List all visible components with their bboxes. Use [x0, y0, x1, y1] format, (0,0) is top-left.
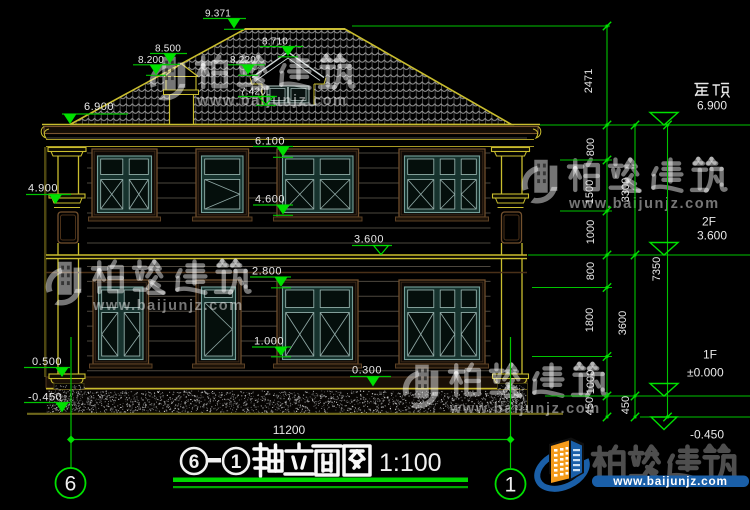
svg-text:6.900: 6.900 — [84, 101, 114, 113]
svg-text:11200: 11200 — [273, 423, 306, 437]
svg-text:1:100: 1:100 — [379, 449, 442, 477]
svg-text:1: 1 — [505, 474, 517, 497]
svg-text:2471: 2471 — [583, 69, 595, 93]
svg-text:9.371: 9.371 — [205, 9, 231, 20]
svg-text:1F: 1F — [703, 348, 717, 362]
svg-text:3600: 3600 — [617, 311, 629, 335]
svg-text:0.500: 0.500 — [32, 356, 62, 368]
svg-text:2F: 2F — [702, 215, 716, 229]
svg-text:3.600: 3.600 — [354, 234, 384, 246]
svg-text:6.100: 6.100 — [255, 136, 285, 148]
svg-text:www.baijunjz.com: www.baijunjz.com — [612, 474, 728, 488]
svg-text:1500: 1500 — [584, 180, 596, 204]
svg-text:2.800: 2.800 — [252, 266, 282, 278]
svg-text:1: 1 — [231, 452, 242, 473]
svg-text:-0.450: -0.450 — [28, 392, 62, 404]
svg-text:1000: 1000 — [585, 220, 597, 244]
svg-text:6.900: 6.900 — [697, 99, 727, 113]
svg-text:1.000: 1.000 — [254, 336, 284, 348]
svg-text:450: 450 — [584, 397, 596, 415]
svg-text:6: 6 — [189, 452, 200, 473]
svg-text:-0.450: -0.450 — [690, 428, 724, 442]
svg-text:3300: 3300 — [620, 178, 632, 202]
svg-text:1800: 1800 — [584, 308, 596, 332]
svg-text:3.600: 3.600 — [697, 229, 727, 243]
svg-text:6: 6 — [65, 473, 77, 496]
svg-text:800: 800 — [585, 138, 597, 156]
svg-text:7350: 7350 — [651, 257, 663, 281]
svg-text:4.600: 4.600 — [255, 194, 285, 206]
svg-text:7.420: 7.420 — [240, 87, 266, 98]
svg-text:800: 800 — [585, 262, 597, 280]
svg-text:4.900: 4.900 — [28, 183, 58, 195]
svg-text:0.300: 0.300 — [352, 365, 382, 377]
svg-text:8.710: 8.710 — [262, 37, 288, 48]
svg-text:8.500: 8.500 — [155, 44, 181, 55]
svg-text:±0.000: ±0.000 — [687, 366, 724, 380]
svg-text:450: 450 — [620, 396, 632, 414]
svg-text:1000: 1000 — [585, 370, 597, 394]
